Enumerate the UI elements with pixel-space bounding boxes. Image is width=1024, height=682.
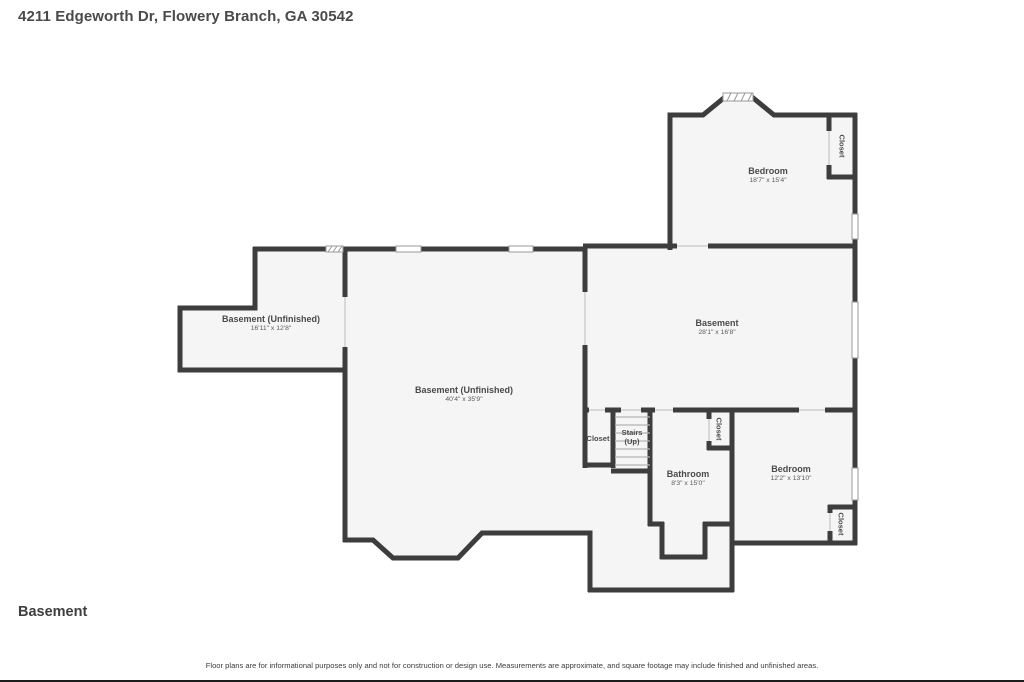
room-dims: 18'7" x 15'4" [748, 177, 788, 185]
room-name: Bathroom [667, 469, 710, 480]
room-label-basement-large: Basement (Unfinished) 40'4" x 35'9" [415, 385, 513, 405]
room-dims: 8'3" x 15'0" [667, 480, 710, 488]
window [852, 468, 858, 500]
room-dims: 16'11" x 12'8" [222, 325, 320, 333]
window [852, 302, 858, 358]
room-label-bathroom: Bathroom 8'3" x 15'0" [667, 469, 710, 489]
room-label-closet-bedroom-bottom: Closet [836, 513, 845, 536]
room-label-closet-bathroom: Closet [714, 418, 723, 441]
room-name: Basement [695, 318, 738, 329]
room-name: Stairs [622, 428, 643, 437]
room-label-stairs: Stairs (Up) [622, 428, 643, 447]
room-label-closet-stairs: Closet [587, 434, 610, 443]
room-dims: (Up) [622, 437, 643, 446]
window [509, 246, 533, 252]
room-dims: 28'1" x 16'8" [695, 329, 738, 337]
disclaimer-text: Floor plans are for informational purpos… [0, 661, 1024, 670]
room-name: Closet [836, 513, 845, 536]
room-dims: 12'2" x 13'10" [770, 475, 811, 483]
room-label-closet-top: Closet [837, 135, 846, 158]
room-name: Bedroom [770, 464, 811, 475]
window [852, 214, 858, 239]
room-name: Closet [587, 434, 610, 443]
room-label-basement-small: Basement (Unfinished) 16'11" x 12'8" [222, 314, 320, 334]
room-dims: 40'4" x 35'9" [415, 396, 513, 404]
room-label-bedroom-bottom: Bedroom 12'2" x 13'10" [770, 464, 811, 484]
room-name: Closet [837, 135, 846, 158]
floor-plan-page: 4211 Edgeworth Dr, Flowery Branch, GA 30… [0, 0, 1024, 682]
floor-plan [0, 0, 1024, 682]
room-name: Closet [714, 418, 723, 441]
floor-level-label: Basement [18, 604, 87, 620]
room-name: Basement (Unfinished) [415, 385, 513, 396]
room-label-bedroom-top: Bedroom 18'7" x 15'4" [748, 166, 788, 186]
room-name: Bedroom [748, 166, 788, 177]
room-name: Basement (Unfinished) [222, 314, 320, 325]
window [396, 246, 421, 252]
room-label-basement-right: Basement 28'1" x 16'8" [695, 318, 738, 338]
